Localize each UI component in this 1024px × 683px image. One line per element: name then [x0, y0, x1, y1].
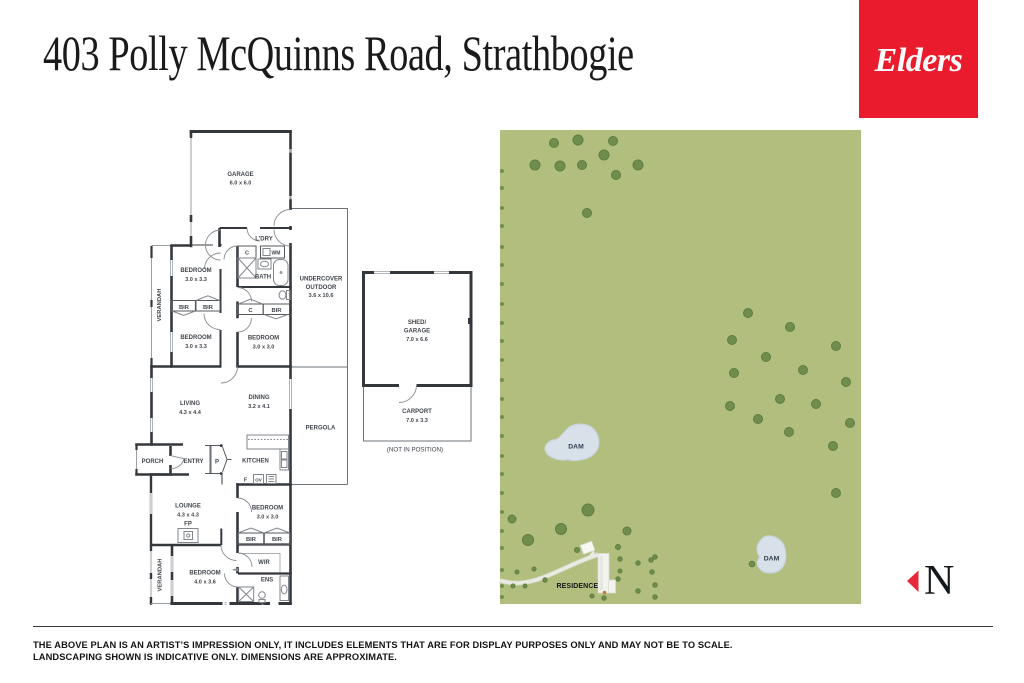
- svg-text:L'DRY: L'DRY: [255, 237, 273, 243]
- svg-text:WIR: WIR: [258, 560, 270, 566]
- svg-text:KITCHEN: KITCHEN: [242, 459, 269, 465]
- svg-text:FP: FP: [184, 522, 192, 528]
- svg-text:N: N: [924, 558, 954, 604]
- svg-text:WM: WM: [272, 251, 281, 257]
- svg-text:4.3 x 4.3: 4.3 x 4.3: [177, 513, 199, 519]
- svg-text:BATH: BATH: [255, 275, 271, 281]
- svg-text:PERGOLA: PERGOLA: [306, 426, 336, 432]
- svg-text:VERANDAH: VERANDAH: [157, 289, 163, 322]
- svg-text:LOUNGE: LOUNGE: [175, 504, 201, 510]
- svg-text:DINING: DINING: [249, 395, 270, 401]
- svg-text:4.3 x 4.4: 4.3 x 4.4: [179, 410, 202, 416]
- svg-text:ENTRY: ENTRY: [183, 459, 203, 465]
- svg-text:BEDROOM: BEDROOM: [189, 571, 220, 577]
- svg-text:BIR: BIR: [179, 305, 190, 311]
- svg-text:(NOT IN POSITION): (NOT IN POSITION): [387, 447, 443, 454]
- svg-text:3.0 x 3.0: 3.0 x 3.0: [253, 345, 275, 351]
- svg-text:BEDROOM: BEDROOM: [248, 336, 279, 342]
- svg-text:OUTDOOR: OUTDOOR: [306, 285, 337, 291]
- svg-text:F: F: [244, 478, 248, 484]
- svg-text:BIR: BIR: [272, 537, 283, 543]
- svg-text:6.0 x 6.0: 6.0 x 6.0: [230, 181, 252, 187]
- svg-text:RESIDENCE: RESIDENCE: [557, 583, 599, 590]
- svg-text:BEDROOM: BEDROOM: [252, 506, 283, 512]
- svg-text:BEDROOM: BEDROOM: [180, 268, 211, 274]
- svg-text:3.0 x 3.3: 3.0 x 3.3: [185, 344, 207, 350]
- svg-text:C: C: [245, 251, 249, 257]
- svg-text:LIVING: LIVING: [180, 401, 200, 407]
- svg-text:UNDERCOVER: UNDERCOVER: [300, 277, 343, 283]
- svg-text:BIR: BIR: [272, 308, 283, 314]
- svg-text:4.0 x 3.6: 4.0 x 3.6: [194, 580, 216, 586]
- svg-text:OV: OV: [255, 478, 262, 483]
- svg-text:7.0 x 3.3: 7.0 x 3.3: [406, 418, 428, 424]
- svg-text:PORCH: PORCH: [142, 459, 164, 465]
- svg-text:BIR: BIR: [246, 537, 257, 543]
- svg-text:BIR: BIR: [203, 305, 214, 311]
- svg-text:P: P: [215, 460, 219, 466]
- svg-text:ENS: ENS: [261, 578, 273, 584]
- svg-text:3.0 x 3.3: 3.0 x 3.3: [185, 277, 207, 283]
- svg-text:DAM: DAM: [764, 556, 780, 563]
- svg-text:7.0 x 6.6: 7.0 x 6.6: [406, 337, 428, 343]
- svg-text:C: C: [248, 308, 253, 314]
- svg-text:GARAGE: GARAGE: [227, 172, 253, 178]
- svg-text:3.0 x 3.0: 3.0 x 3.0: [257, 515, 279, 521]
- svg-text:BEDROOM: BEDROOM: [180, 335, 211, 341]
- svg-text:DAM: DAM: [568, 444, 584, 451]
- svg-text:3.2 x 4.1: 3.2 x 4.1: [248, 404, 270, 410]
- svg-text:VERANDAH: VERANDAH: [158, 559, 164, 592]
- svg-text:GARAGE: GARAGE: [404, 329, 430, 335]
- svg-text:3.6 x 10.6: 3.6 x 10.6: [309, 293, 334, 299]
- svg-text:SHED/: SHED/: [408, 320, 427, 326]
- svg-text:CARPORT: CARPORT: [402, 409, 432, 415]
